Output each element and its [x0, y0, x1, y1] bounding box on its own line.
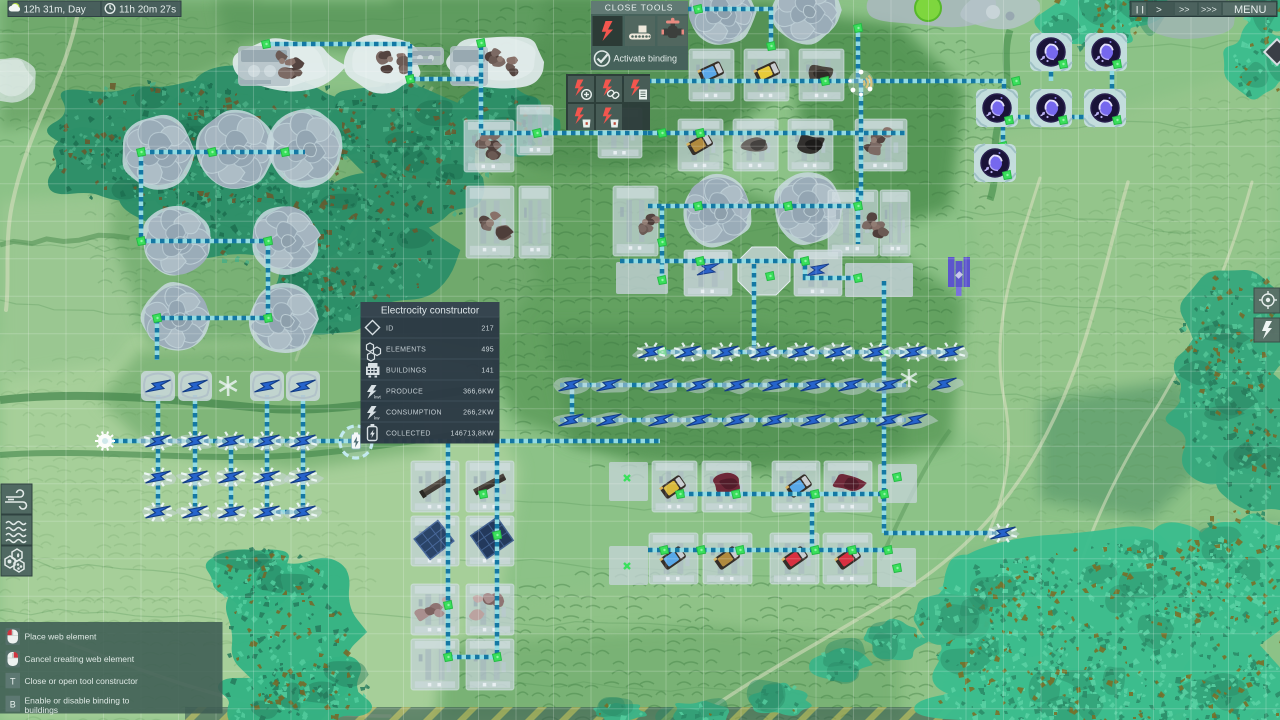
svg-text:ID: ID: [386, 326, 394, 333]
svg-text:| |: | |: [1136, 5, 1144, 14]
svg-text:141: 141: [481, 368, 494, 375]
svg-text:Close or open tool constructor: Close or open tool constructor: [25, 676, 139, 686]
svg-text:T: T: [10, 676, 16, 686]
svg-text:366,6KW: 366,6KW: [463, 389, 494, 396]
svg-text:B: B: [10, 700, 16, 710]
svg-text:PRODUCE: PRODUCE: [386, 389, 423, 396]
svg-text:ELEMENTS: ELEMENTS: [386, 347, 426, 354]
svg-text:217: 217: [481, 326, 494, 333]
svg-text:COLLECTED: COLLECTED: [386, 431, 431, 438]
svg-text:146713,8KW: 146713,8KW: [451, 431, 495, 438]
svg-text:MENU: MENU: [1234, 4, 1266, 16]
svg-text:CLOSE TOOLS: CLOSE TOOLS: [605, 3, 673, 13]
svg-text:Activate binding: Activate binding: [614, 54, 678, 64]
svg-text:BUILDINGS: BUILDINGS: [386, 368, 426, 375]
svg-text:Electrocity constructor: Electrocity constructor: [381, 306, 480, 317]
svg-text:kwt: kwt: [374, 395, 381, 400]
svg-text:Cancel creating web element: Cancel creating web element: [25, 654, 135, 664]
svg-text:buildings: buildings: [25, 705, 59, 715]
svg-text:12h 31m, Day: 12h 31m, Day: [24, 5, 86, 16]
svg-text:Enable or disable binding to: Enable or disable binding to: [25, 696, 130, 706]
svg-text:>: >: [1156, 5, 1162, 16]
svg-text:266,2KW: 266,2KW: [463, 410, 494, 417]
svg-text:CONSUMPTION: CONSUMPTION: [386, 410, 442, 417]
svg-text:>>>: >>>: [1201, 5, 1217, 15]
svg-text:11h 20m 27s: 11h 20m 27s: [119, 5, 176, 16]
svg-text:Place web element: Place web element: [25, 632, 97, 642]
svg-text:495: 495: [481, 347, 494, 354]
svg-text:>>: >>: [1179, 5, 1190, 15]
svg-text:kw: kw: [374, 416, 380, 421]
